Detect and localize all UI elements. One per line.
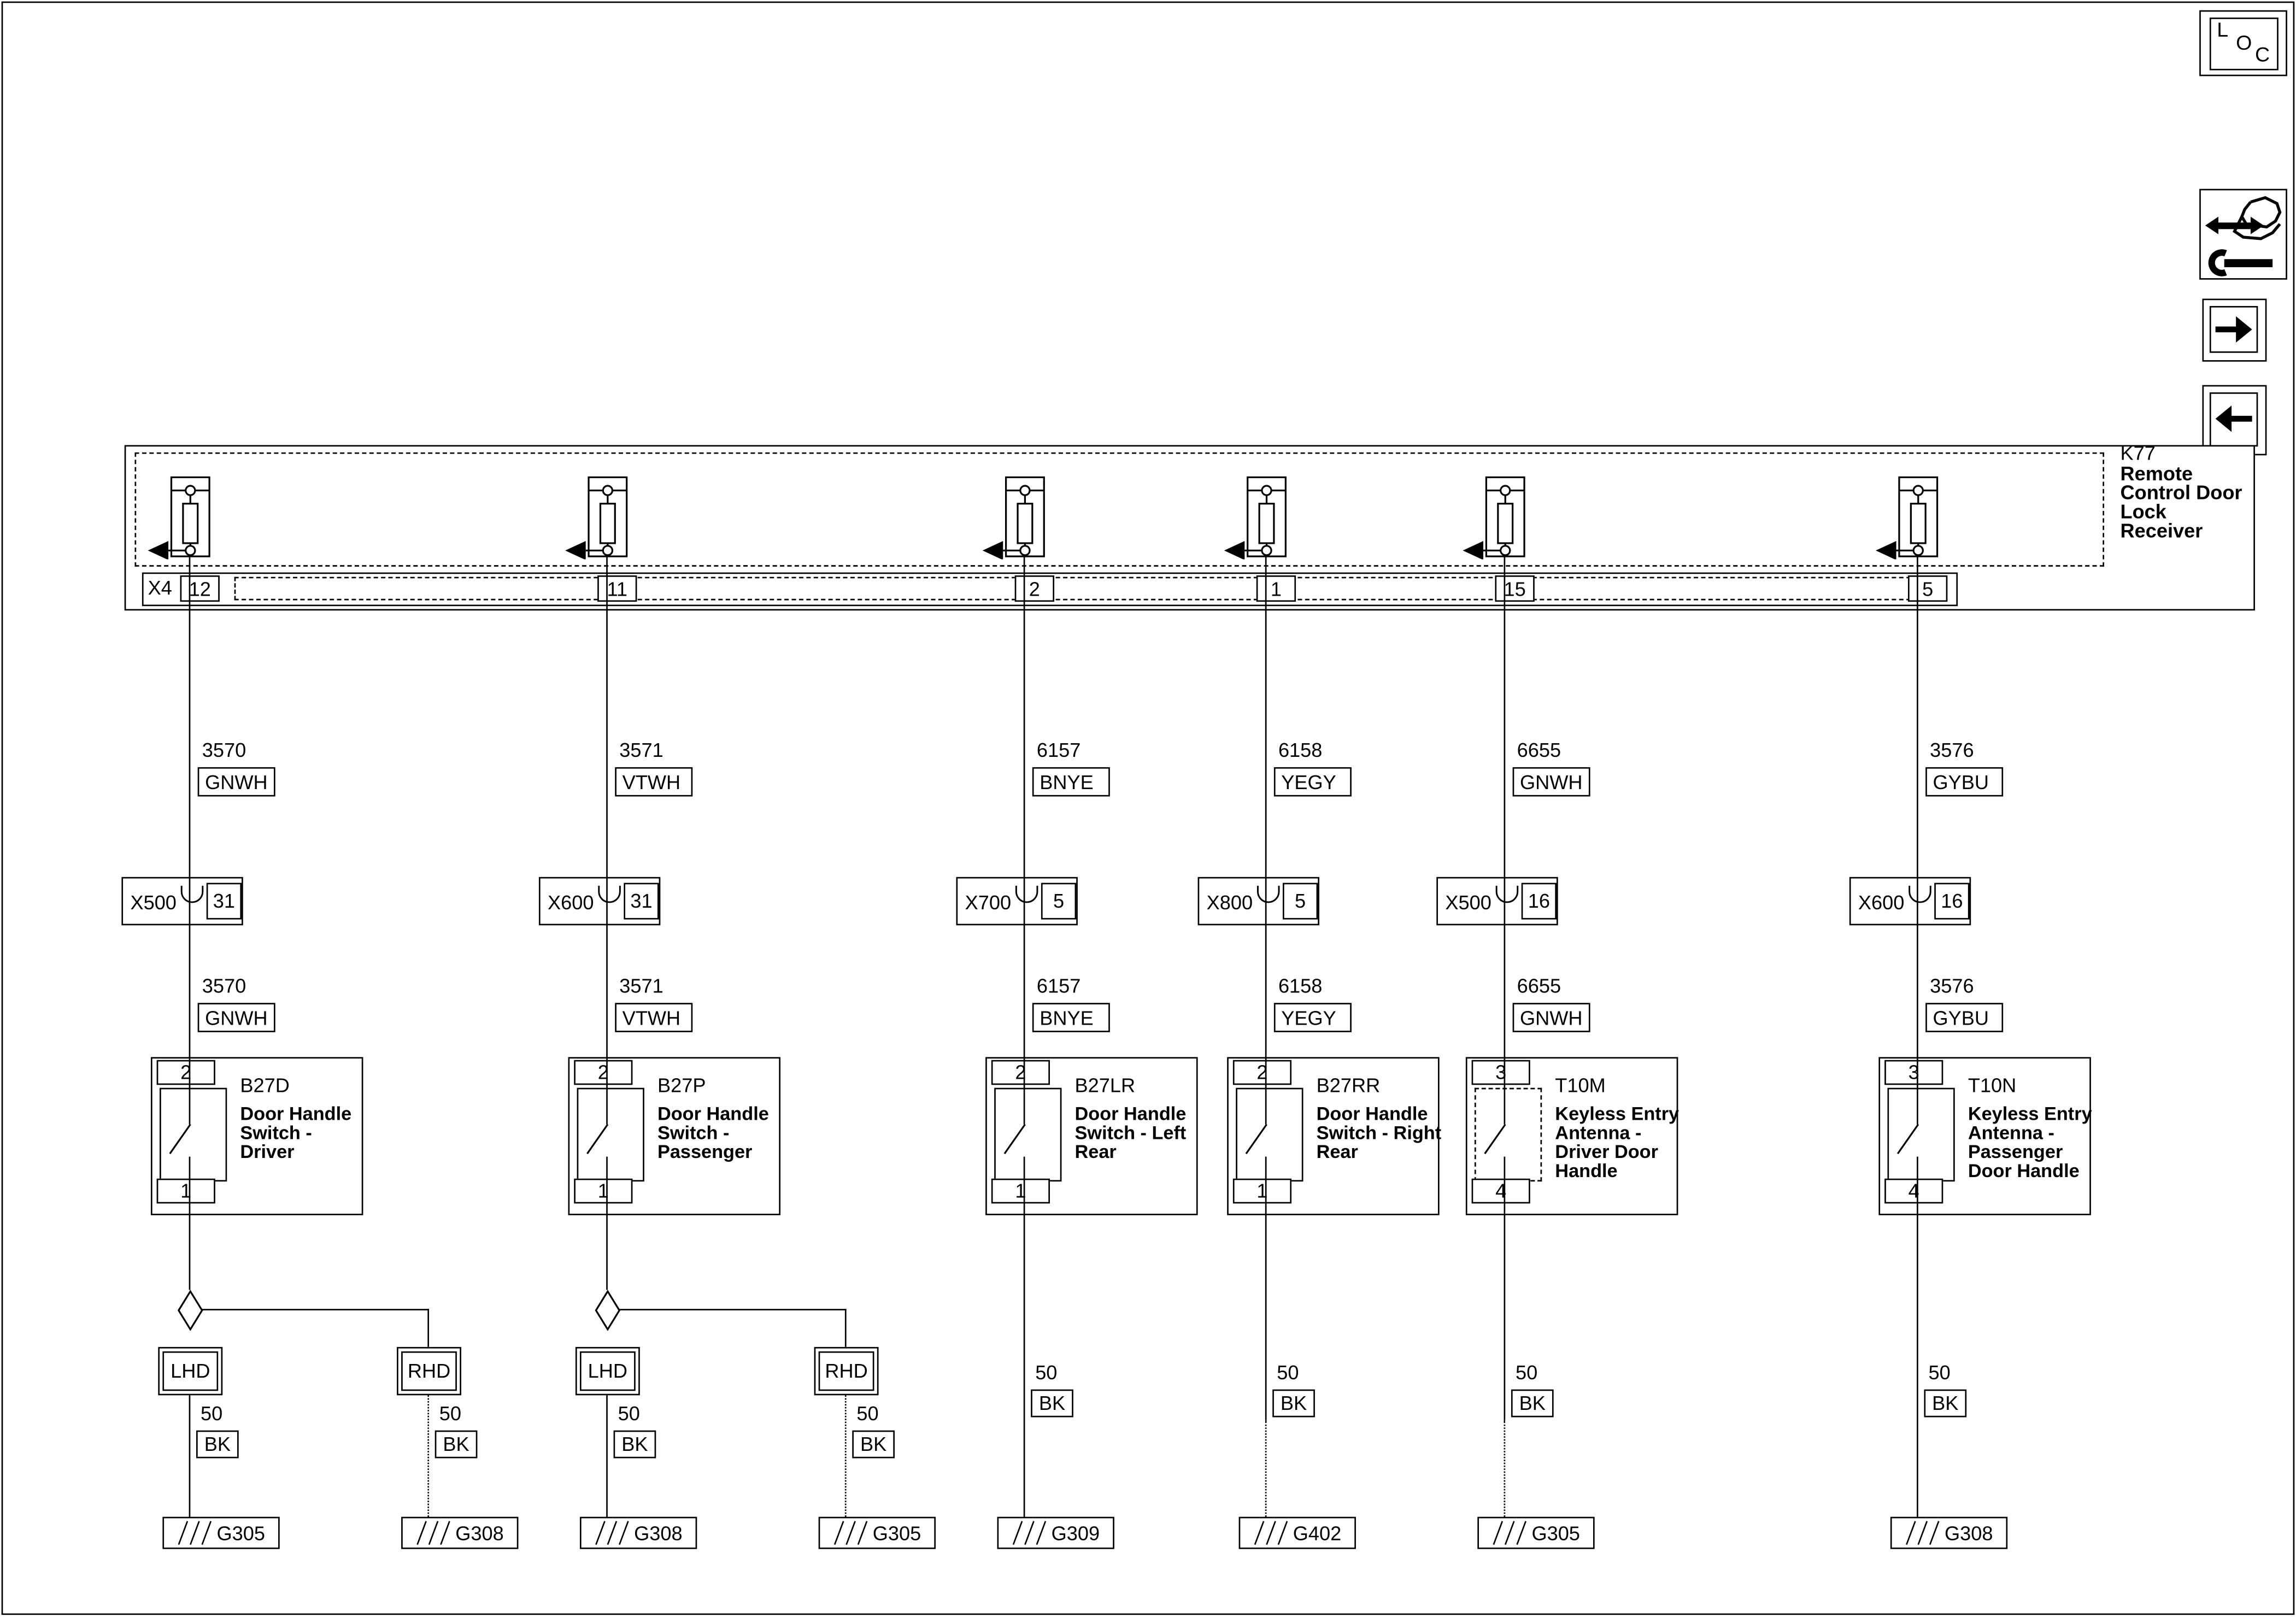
receiver-pin-number: 1 — [1256, 575, 1296, 602]
connector-pin-number: 16 — [1522, 883, 1557, 920]
connector-socket-icon — [1013, 884, 1040, 906]
ground-circuit-number: 50 — [201, 1404, 222, 1425]
wire-segment — [1917, 555, 1918, 1124]
connector-name: X500 — [1445, 892, 1491, 914]
connector-socket-icon — [596, 884, 622, 906]
ground-id: G402 — [1293, 1522, 1341, 1544]
component-pin-bottom: 4 — [1884, 1179, 1943, 1204]
receiver-pin-number: 5 — [1908, 575, 1947, 602]
ground-circuit-number: 50 — [1277, 1363, 1299, 1384]
component-name-line: Driver — [240, 1142, 294, 1161]
antenna-contact — [1896, 1123, 1920, 1155]
branch-wire — [845, 1309, 847, 1347]
wire-color-code: YEGY — [1274, 1003, 1352, 1032]
ground-hatch-icon — [170, 1520, 214, 1546]
connector-pin-number: 31 — [207, 883, 242, 920]
ground-circuit-number: 50 — [439, 1404, 461, 1425]
loc-letter-l: L — [2217, 19, 2228, 40]
component-name-line: Switch - Right — [1317, 1123, 1442, 1142]
inline-connector: X500 16 — [1436, 877, 1558, 925]
lhd-label: LHD — [162, 1351, 218, 1391]
component-name-line: Antenna - — [1555, 1123, 1641, 1142]
loc-letter-c: C — [2255, 44, 2270, 64]
branch-wire — [427, 1309, 429, 1347]
wire-segment — [189, 1157, 191, 1290]
connector-socket-icon — [1906, 884, 1933, 906]
wire-color-code: GNWH — [198, 767, 275, 797]
wire-circuit-number: 3570 — [202, 977, 246, 997]
component-name-line: Door Handle — [1075, 1104, 1187, 1123]
wire-segment-option — [1265, 1420, 1267, 1517]
splice-diamond — [177, 1290, 203, 1331]
component-pin-bottom: 1 — [1233, 1179, 1291, 1204]
component-id: B27LR — [1075, 1075, 1136, 1097]
splice-diamond — [595, 1290, 621, 1331]
component-name-line: Switch - — [240, 1123, 312, 1142]
ground-wire-color: BK — [852, 1431, 895, 1459]
component-id: B27P — [657, 1075, 706, 1097]
wire-segment — [1265, 1157, 1267, 1420]
connector-pin-number: 5 — [1283, 883, 1318, 920]
ground-symbol: G308 — [580, 1517, 697, 1549]
branch-wire — [202, 1309, 429, 1310]
ground-circuit-number: 50 — [1516, 1363, 1537, 1384]
connector-pin-number: 31 — [624, 883, 659, 920]
ground-hatch-icon — [1898, 1520, 1941, 1546]
receiver-connector-label: X4 — [148, 578, 172, 599]
connector-strip-dashed-line — [234, 577, 1948, 601]
receiver-pin-number: 12 — [180, 575, 220, 602]
ground-wire-color: BK — [1031, 1390, 1073, 1418]
rhd-label: RHD — [819, 1351, 874, 1391]
wiring-diagram-page: L O C K77 Remote — [0, 0, 2296, 1616]
ground-symbol: G308 — [1890, 1517, 2007, 1549]
wire-color-code: GNWH — [1513, 767, 1590, 797]
wire-circuit-number: 3570 — [202, 741, 246, 762]
component-name-line: Switch - — [657, 1123, 729, 1142]
wire-segment — [1265, 555, 1267, 1124]
ground-circuit-number: 50 — [856, 1404, 878, 1425]
ground-wire-color: BK — [1272, 1390, 1315, 1418]
wire-circuit-number: 6157 — [1037, 977, 1081, 997]
component-pin-bottom: 1 — [574, 1179, 632, 1204]
wire-color-code: GYBU — [1925, 767, 2003, 797]
ground-hatch-icon — [1485, 1520, 1529, 1546]
component-name-line: Switch - Left — [1075, 1123, 1187, 1142]
component-pin-bottom: 1 — [157, 1179, 215, 1204]
connector-name: X800 — [1207, 892, 1253, 914]
connector-socket-icon — [1255, 884, 1281, 906]
receiver-pin-symbol — [140, 476, 228, 560]
receiver-pin-symbol — [975, 476, 1063, 560]
receiver-pin-number: 11 — [597, 575, 637, 602]
wire-color-code: BNYE — [1032, 767, 1110, 797]
receiver-name-line: Receiver — [2120, 521, 2203, 542]
wire-circuit-number: 6655 — [1517, 741, 1561, 762]
inline-connector: X700 5 — [956, 877, 1078, 925]
wire-segment — [606, 1157, 608, 1290]
wire-segment — [1024, 555, 1025, 1124]
component-name-line: Keyless Entry — [1968, 1104, 2092, 1123]
wire-circuit-number: 6158 — [1278, 977, 1323, 997]
component-name-line: Passenger — [1968, 1142, 2063, 1161]
loc-button[interactable]: L O C — [2199, 10, 2287, 77]
component-pin-bottom: 1 — [991, 1179, 1050, 1204]
wire-color-code: GYBU — [1925, 1003, 2003, 1032]
component-name-line: Door Handle — [240, 1104, 351, 1123]
wire-circuit-number: 6157 — [1037, 741, 1081, 762]
wire-circuit-number: 3571 — [619, 741, 663, 762]
component-name-line: Passenger — [657, 1142, 752, 1161]
connector-socket-icon — [179, 884, 205, 906]
ground-id: G308 — [634, 1522, 682, 1544]
wire-color-code: GNWH — [198, 1003, 275, 1032]
loc-letter-o: O — [2236, 32, 2252, 53]
ground-hatch-icon — [587, 1520, 631, 1546]
wire-circuit-number: 3576 — [1930, 977, 1974, 997]
wire-segment — [1504, 1157, 1506, 1420]
wire-segment — [606, 1395, 608, 1516]
arrow-left-icon — [2211, 394, 2257, 444]
receiver-pin-symbol — [558, 476, 646, 560]
wire-circuit-number: 6655 — [1517, 977, 1561, 997]
ground-symbol: G402 — [1239, 1517, 1356, 1549]
vehicle-wrench-icon — [2203, 192, 2285, 277]
inline-connector: X800 5 — [1198, 877, 1319, 925]
ground-wire-color: BK — [196, 1431, 239, 1459]
receiver-id: K77 — [2120, 444, 2155, 464]
component-name-line: Rear — [1075, 1142, 1117, 1161]
inline-connector: X600 31 — [539, 877, 660, 925]
component-name-line: Door Handle — [1968, 1161, 2080, 1180]
wire-segment — [1917, 1157, 1918, 1517]
ground-hatch-icon — [1005, 1520, 1048, 1546]
ground-circuit-number: 50 — [618, 1404, 640, 1425]
ground-id: G309 — [1052, 1522, 1100, 1544]
lhd-label: LHD — [580, 1351, 636, 1391]
wire-segment — [606, 555, 608, 1124]
wire-color-code: BNYE — [1032, 1003, 1110, 1032]
ground-wire-color: BK — [614, 1431, 656, 1459]
receiver-internal-dashed-box — [134, 452, 2104, 567]
ground-hatch-icon — [826, 1520, 870, 1546]
component-id: B27RR — [1317, 1075, 1381, 1097]
component-id: B27D — [240, 1075, 290, 1097]
wire-circuit-number: 3576 — [1930, 741, 1974, 762]
wire-circuit-number: 6158 — [1278, 741, 1323, 762]
component-name-line: Rear — [1317, 1142, 1358, 1161]
component-id: T10M — [1555, 1075, 1605, 1097]
rhd-marker: RHD — [397, 1347, 461, 1395]
receiver-pin-symbol — [1455, 476, 1543, 560]
inline-connector: X500 31 — [121, 877, 243, 925]
wire-segment-option — [1504, 1420, 1506, 1517]
page-border — [2, 2, 2295, 1615]
wire-color-code: VTWH — [615, 767, 692, 797]
component-pin-top: 2 — [574, 1060, 632, 1085]
ground-wire-color: BK — [1924, 1390, 1966, 1418]
receiver-pin-symbol — [1217, 476, 1305, 560]
switch-contact — [168, 1123, 192, 1155]
component-pin-top: 3 — [1884, 1060, 1943, 1085]
switch-contact — [1003, 1123, 1026, 1155]
ground-symbol: G305 — [1477, 1517, 1594, 1549]
component-id: T10N — [1968, 1075, 2016, 1097]
component-pin-top: 2 — [1233, 1060, 1291, 1085]
ground-symbol: G308 — [401, 1517, 518, 1549]
component-name-line: Handle — [1555, 1161, 1617, 1180]
wire-segment — [1504, 555, 1506, 1124]
diagnostic-vehicle-button[interactable] — [2199, 189, 2287, 280]
switch-contact — [1244, 1123, 1268, 1155]
connector-name: X500 — [130, 892, 176, 914]
wire-color-code: VTWH — [615, 1003, 692, 1032]
wire-segment — [189, 1395, 191, 1516]
wire-segment — [189, 555, 191, 1124]
connector-name: X600 — [548, 892, 594, 914]
next-page-button[interactable] — [2203, 299, 2267, 362]
ground-circuit-number: 50 — [1929, 1363, 1951, 1384]
ground-id: G305 — [1531, 1522, 1579, 1544]
ground-symbol: G305 — [162, 1517, 279, 1549]
ground-id: G308 — [455, 1522, 503, 1544]
ground-symbol: G305 — [819, 1517, 936, 1549]
ground-wire-color: BK — [435, 1431, 478, 1459]
branch-wire — [619, 1309, 846, 1310]
antenna-contact — [1483, 1123, 1507, 1155]
component-name-line: Antenna - — [1968, 1123, 2054, 1142]
ground-id: G305 — [873, 1522, 921, 1544]
ground-id: G308 — [1945, 1522, 1993, 1544]
connector-name: X600 — [1858, 892, 1904, 914]
wire-segment-option — [427, 1395, 429, 1516]
component-pin-top: 2 — [157, 1060, 215, 1085]
wire-segment-option — [845, 1395, 847, 1516]
ground-hatch-icon — [408, 1520, 452, 1546]
component-pin-bottom: 4 — [1472, 1179, 1530, 1204]
inline-connector: X600 16 — [1849, 877, 1971, 925]
component-pin-top: 2 — [991, 1060, 1050, 1085]
ground-symbol: G309 — [997, 1517, 1114, 1549]
lhd-marker: LHD — [576, 1347, 640, 1395]
component-pin-top: 3 — [1472, 1060, 1530, 1085]
ground-wire-color: BK — [1511, 1390, 1554, 1418]
connector-name: X700 — [965, 892, 1011, 914]
component-name-line: Door Handle — [1317, 1104, 1428, 1123]
wire-color-code: YEGY — [1274, 767, 1352, 797]
rhd-marker: RHD — [814, 1347, 879, 1395]
lhd-marker: LHD — [158, 1347, 222, 1395]
wire-circuit-number: 3571 — [619, 977, 663, 997]
connector-socket-icon — [1494, 884, 1520, 906]
component-name-line: Driver Door — [1555, 1142, 1658, 1161]
receiver-pin-number: 2 — [1015, 575, 1054, 602]
wire-color-code: GNWH — [1513, 1003, 1590, 1032]
ground-id: G305 — [217, 1522, 265, 1544]
receiver-pin-symbol — [1869, 476, 1957, 560]
connector-pin-number: 16 — [1934, 883, 1969, 920]
ground-hatch-icon — [1246, 1520, 1290, 1546]
connector-pin-number: 5 — [1041, 883, 1076, 920]
loc-icon: L O C — [2210, 17, 2279, 70]
wire-segment — [1024, 1157, 1025, 1517]
switch-contact — [586, 1123, 609, 1155]
component-name-line: Keyless Entry — [1555, 1104, 1679, 1123]
rhd-label: RHD — [401, 1351, 457, 1391]
receiver-pin-number: 15 — [1495, 575, 1534, 602]
arrow-right-icon — [2211, 308, 2257, 351]
ground-circuit-number: 50 — [1035, 1363, 1057, 1384]
component-name-line: Door Handle — [657, 1104, 769, 1123]
